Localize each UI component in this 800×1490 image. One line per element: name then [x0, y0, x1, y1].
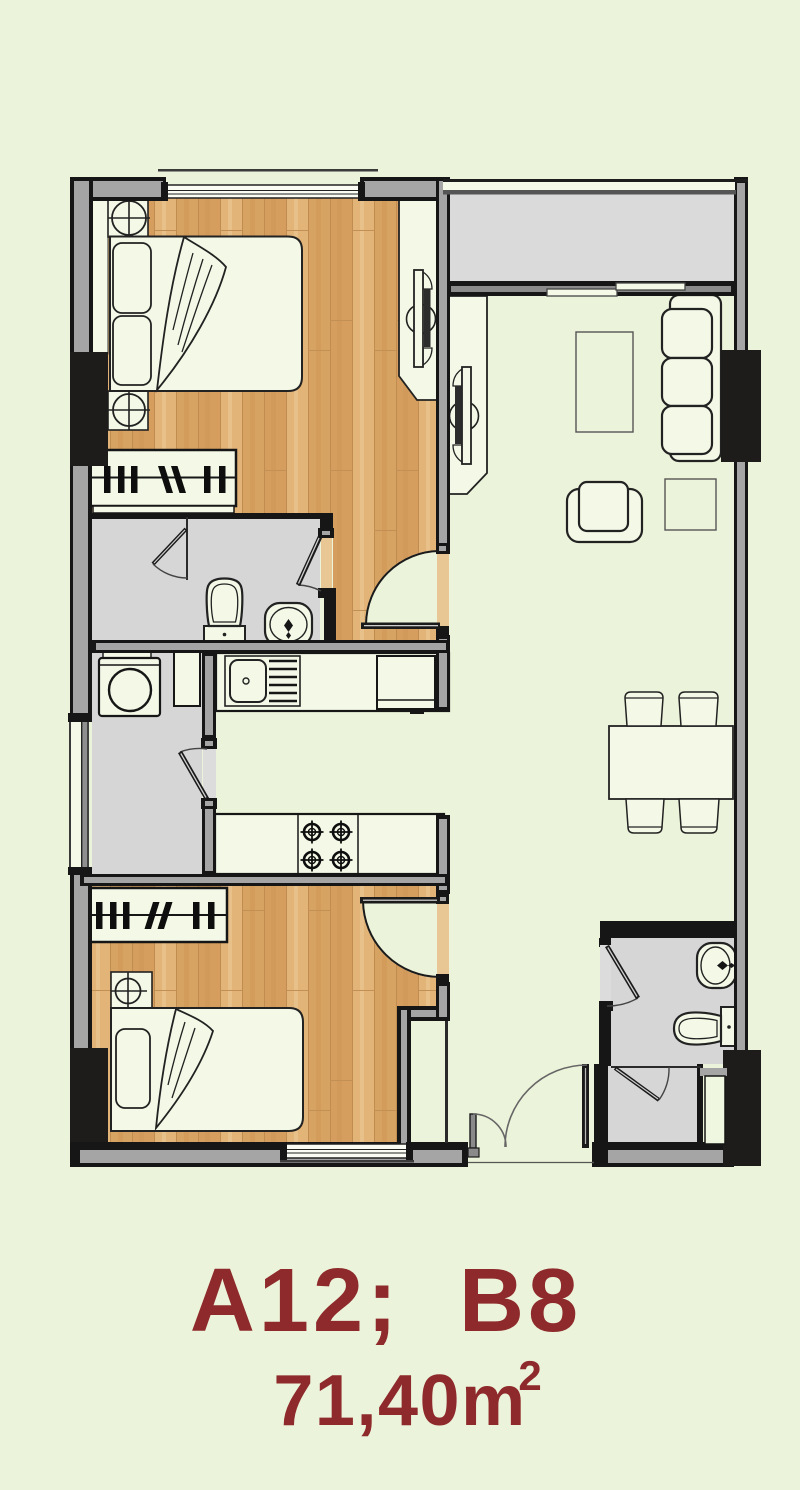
svg-text:A12; B8: A12; B8 [190, 1251, 582, 1351]
svg-text:71,40m: 71,40m [273, 1361, 526, 1441]
svg-text:2: 2 [518, 1352, 541, 1399]
